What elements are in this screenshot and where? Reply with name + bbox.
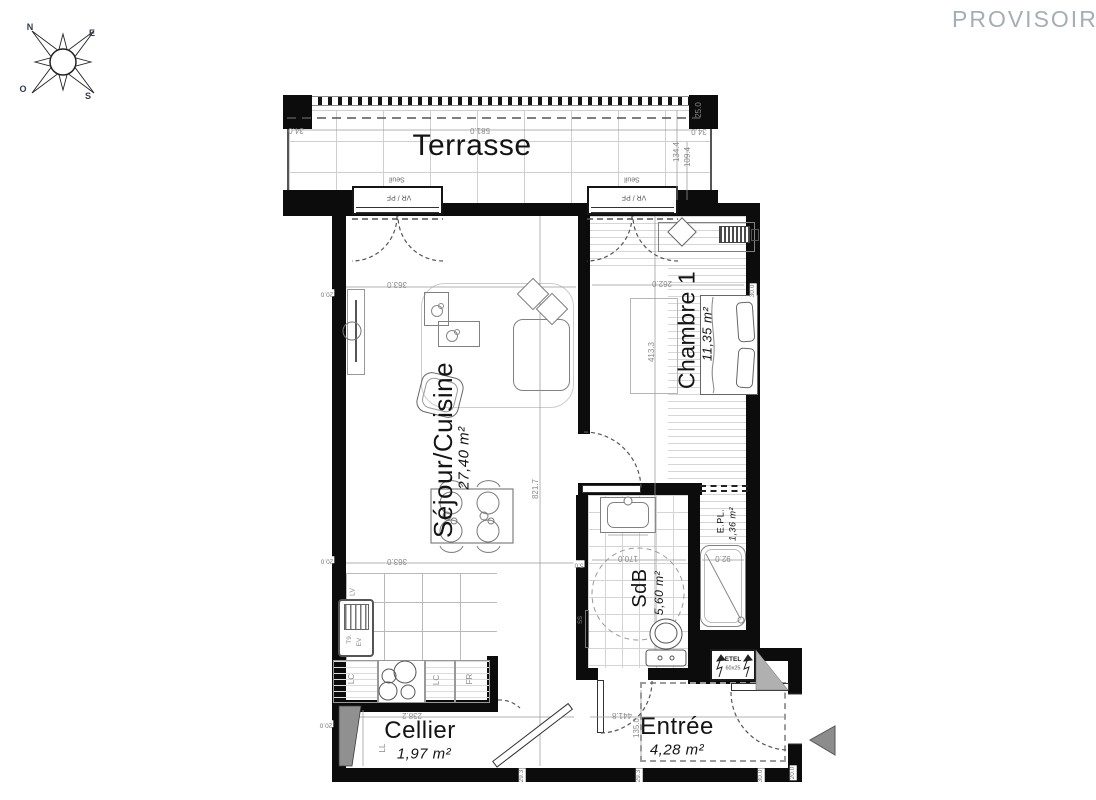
tag-fr: FR — [466, 674, 474, 685]
tick-bottom-4: 20.0 — [790, 766, 797, 781]
lamps — [432, 304, 460, 342]
room-label-chambre: Chambre 1 — [676, 271, 699, 389]
tag-lc1: LC — [348, 674, 356, 684]
tag-etel: ETEL — [725, 657, 742, 664]
compass-rose — [32, 31, 94, 93]
room-label-sdb: SdB — [630, 568, 650, 607]
sofa-pillows — [517, 278, 567, 324]
tick-bottom-3: 30.0 — [758, 769, 765, 784]
tick-bottom-1: 29.3 — [519, 769, 526, 784]
dim-terrace-109: 109.4 — [684, 147, 692, 167]
tick-wall-left-1: 20.0 — [320, 290, 335, 297]
room-area-sejour: 27,40 m² — [457, 426, 472, 489]
compass-e: E — [89, 28, 95, 38]
dim-sejour-height: 821.7 — [532, 479, 540, 499]
dim-terrace-width: 581.0 — [470, 126, 490, 134]
dim-sdb-width: 170.0 — [618, 554, 638, 562]
plan-linework — [0, 0, 1096, 800]
room-label-cellier: Cellier — [384, 719, 456, 743]
compass-o: O — [19, 84, 26, 94]
tv-set — [343, 300, 361, 362]
entry-duct-shading — [756, 650, 788, 690]
tag-t9: T9. — [347, 634, 354, 643]
door-frame-lines — [788, 694, 802, 744]
dim-chambre-width: 262.0 — [652, 279, 672, 287]
shower-detail — [706, 554, 744, 623]
tag-lv: LV — [350, 588, 357, 596]
compass-s: S — [85, 91, 91, 101]
room-label-terrasse: Terrasse — [412, 131, 531, 161]
tag-ll: LL — [379, 744, 387, 753]
room-area-entree: 4,28 m² — [650, 743, 704, 758]
dim-terrace-25: 25.0 — [695, 102, 703, 118]
dim-terrace-134: 134.4 — [673, 142, 681, 162]
room-area-epl: 1,36 m² — [729, 507, 738, 541]
room-area-chambre: 11,35 m² — [701, 307, 714, 361]
entry-arrow-icon — [810, 726, 835, 755]
cellier-door-leaf — [493, 704, 573, 767]
tag-lc2: LC — [433, 675, 441, 685]
dim-sejour-width-top: 363.0 — [387, 280, 407, 288]
tick-bottom-2: 29.3 — [636, 769, 643, 784]
floor-plan: PROVISOIRE VR / PF VR / PF Seuil Seuil — [0, 0, 1096, 800]
dimension-lines — [292, 110, 784, 766]
room-area-cellier: 1,97 m² — [397, 747, 451, 762]
dim-sejour-width-bottom: 363.0 — [387, 557, 407, 565]
toilet — [646, 619, 686, 666]
dim-entree-height: 135.0 — [633, 718, 641, 738]
dim-chambre-height: 413.3 — [648, 342, 656, 362]
sink-tap — [624, 497, 632, 505]
swing-arcs — [287, 118, 789, 750]
room-label-sejour: Séjour/Cuisine — [430, 362, 456, 538]
desk-chair — [668, 218, 696, 246]
dim-entree-width: 441.8 — [612, 711, 632, 719]
room-area-sdb: 5,60 m² — [653, 571, 665, 615]
dim-terrace-side-right: 34.0 — [691, 127, 707, 135]
tick-sdb-wall: 5.0 — [573, 561, 584, 568]
room-label-entree: Entrée — [640, 715, 714, 739]
dim-terrace-side-left: 34.0 — [288, 126, 304, 134]
dim-shower-width: 92.0 — [715, 554, 731, 562]
tag-ss: SS — [578, 616, 584, 624]
dim-cellier-width: 238.2 — [402, 711, 422, 719]
cellier-duct — [339, 706, 361, 766]
tick-wall-right: 30.0 — [750, 284, 757, 299]
tag-etel-size: 60x25 — [726, 666, 741, 672]
tick-wall-left-2: 20.0 — [320, 557, 335, 564]
tag-ev: EV — [357, 638, 364, 647]
tick-wall-left-3: 20.0 — [319, 721, 334, 728]
room-label-epl: E.PL. — [717, 509, 726, 534]
hob-burners — [379, 661, 416, 700]
compass-n: N — [27, 22, 34, 32]
